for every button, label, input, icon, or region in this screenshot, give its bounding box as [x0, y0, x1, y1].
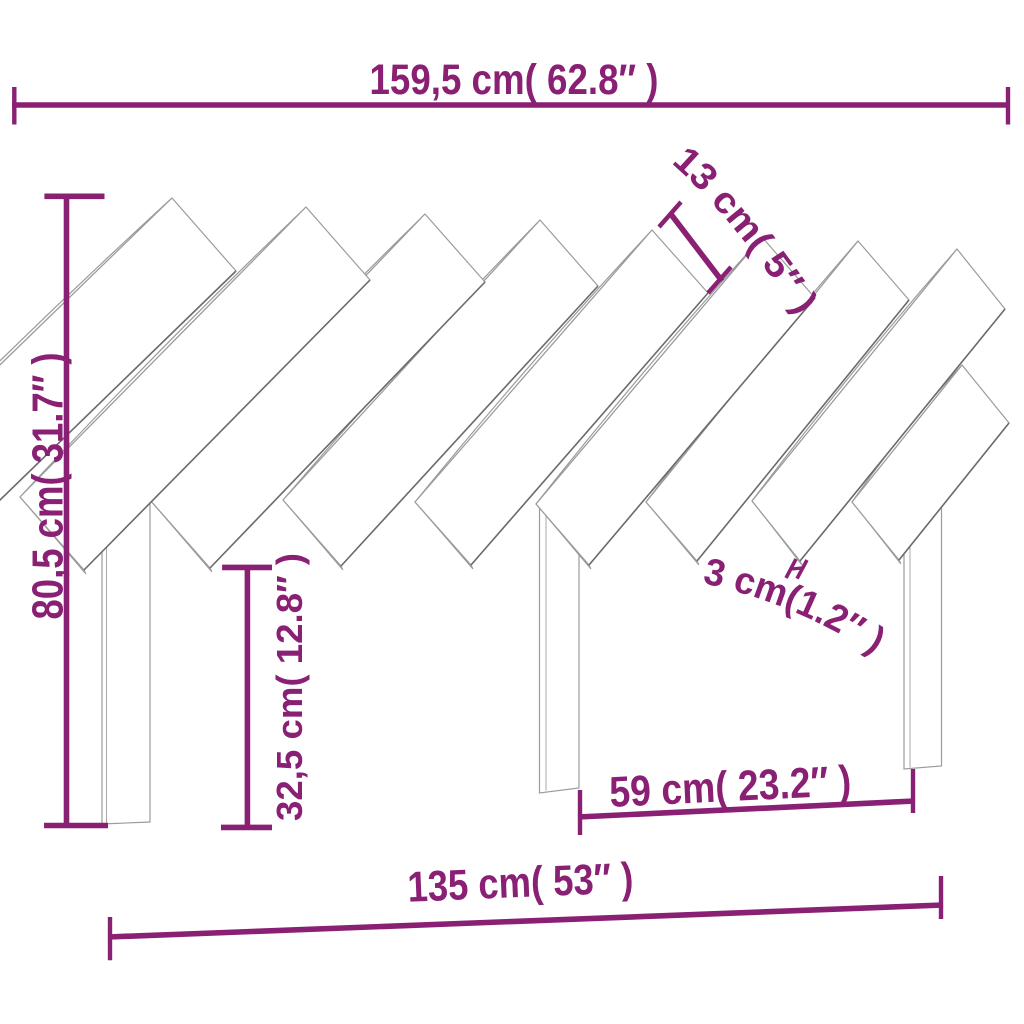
svg-text:135 cm( 53″ ): 135 cm( 53″ ): [407, 854, 635, 911]
svg-text:80,5 cm( 31.7″ ): 80,5 cm( 31.7″ ): [24, 353, 73, 620]
svg-text:159,5 cm( 62.8″ ): 159,5 cm( 62.8″ ): [370, 56, 659, 104]
svg-text:32,5 cm( 12.8″ ): 32,5 cm( 12.8″ ): [269, 553, 310, 821]
